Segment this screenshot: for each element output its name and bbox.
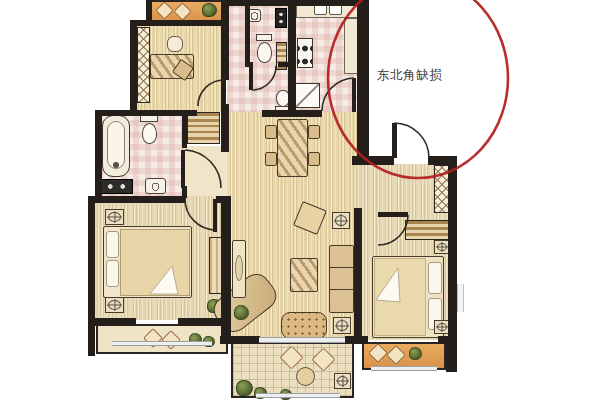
wall — [178, 318, 229, 326]
wall — [146, 0, 152, 22]
side-table-lamp — [332, 212, 350, 229]
pillow — [106, 260, 119, 287]
dining-chair — [265, 152, 277, 166]
wall — [354, 208, 362, 338]
floor-plan-image: 东北角缺损 — [0, 0, 600, 400]
wall — [354, 336, 368, 344]
side-table-lamp — [333, 317, 351, 334]
wall — [278, 62, 288, 67]
stove — [297, 38, 313, 68]
wall — [262, 110, 322, 117]
bathtub-drain — [113, 162, 119, 168]
toilet-tank — [140, 115, 158, 122]
potted-plant — [236, 380, 253, 396]
kitchen-counter — [344, 18, 358, 74]
nightstand-lamp — [105, 209, 124, 225]
window — [112, 341, 212, 346]
nightstand-lamp — [105, 297, 124, 313]
door-leaf — [181, 150, 185, 188]
window — [256, 393, 340, 398]
toilet — [257, 42, 272, 63]
door-leaf — [378, 212, 408, 217]
round-table — [296, 367, 315, 386]
wall — [221, 104, 229, 152]
wall — [288, 0, 296, 112]
study-wardrobe — [137, 27, 150, 103]
wall — [448, 158, 457, 344]
wall — [352, 156, 394, 165]
potted-plant — [234, 305, 249, 320]
toilet-tank — [256, 34, 272, 41]
washing-machine — [100, 179, 133, 194]
dining-chair — [308, 152, 320, 166]
dining-table — [277, 119, 308, 177]
wall — [357, 0, 369, 164]
wall — [92, 196, 186, 203]
armchair-sofa — [329, 245, 354, 313]
water-heater — [275, 8, 287, 28]
wall — [446, 336, 457, 372]
wall — [88, 318, 95, 356]
paper-roll — [167, 36, 183, 52]
wall — [245, 2, 250, 64]
potted-plant — [202, 3, 217, 17]
wall — [221, 196, 231, 336]
wall — [88, 196, 95, 326]
toilet — [142, 123, 157, 144]
bathroom-sink — [145, 178, 166, 194]
window — [457, 284, 464, 312]
blanket — [120, 229, 190, 296]
decor-vase — [235, 255, 243, 281]
door-leaf — [221, 80, 226, 106]
coffee-table — [281, 312, 327, 339]
wall — [88, 318, 136, 326]
dining-chair — [265, 125, 277, 139]
wall — [221, 0, 229, 80]
fridge — [295, 83, 320, 108]
bedroom-wardrobe — [405, 220, 449, 240]
entrance-door-arc — [394, 123, 429, 158]
square-table — [290, 258, 318, 292]
mattress — [374, 258, 426, 336]
wall — [220, 336, 260, 344]
wall — [95, 110, 102, 202]
door-leaf — [213, 199, 217, 232]
hallway-floor — [184, 146, 228, 198]
window — [259, 337, 345, 343]
wall — [130, 20, 137, 116]
door-leaf — [249, 66, 253, 90]
wall — [182, 112, 187, 148]
window — [371, 366, 437, 371]
annotation-label: 东北角缺损 — [377, 67, 442, 84]
plant-stand — [334, 373, 351, 389]
hall-wardrobe — [187, 112, 220, 144]
door-leaf — [352, 78, 356, 112]
entrance-door-leaf — [392, 123, 397, 158]
pillow — [428, 262, 442, 294]
pillow — [106, 231, 119, 258]
potted-plant — [409, 347, 422, 360]
dining-chair — [308, 125, 320, 139]
